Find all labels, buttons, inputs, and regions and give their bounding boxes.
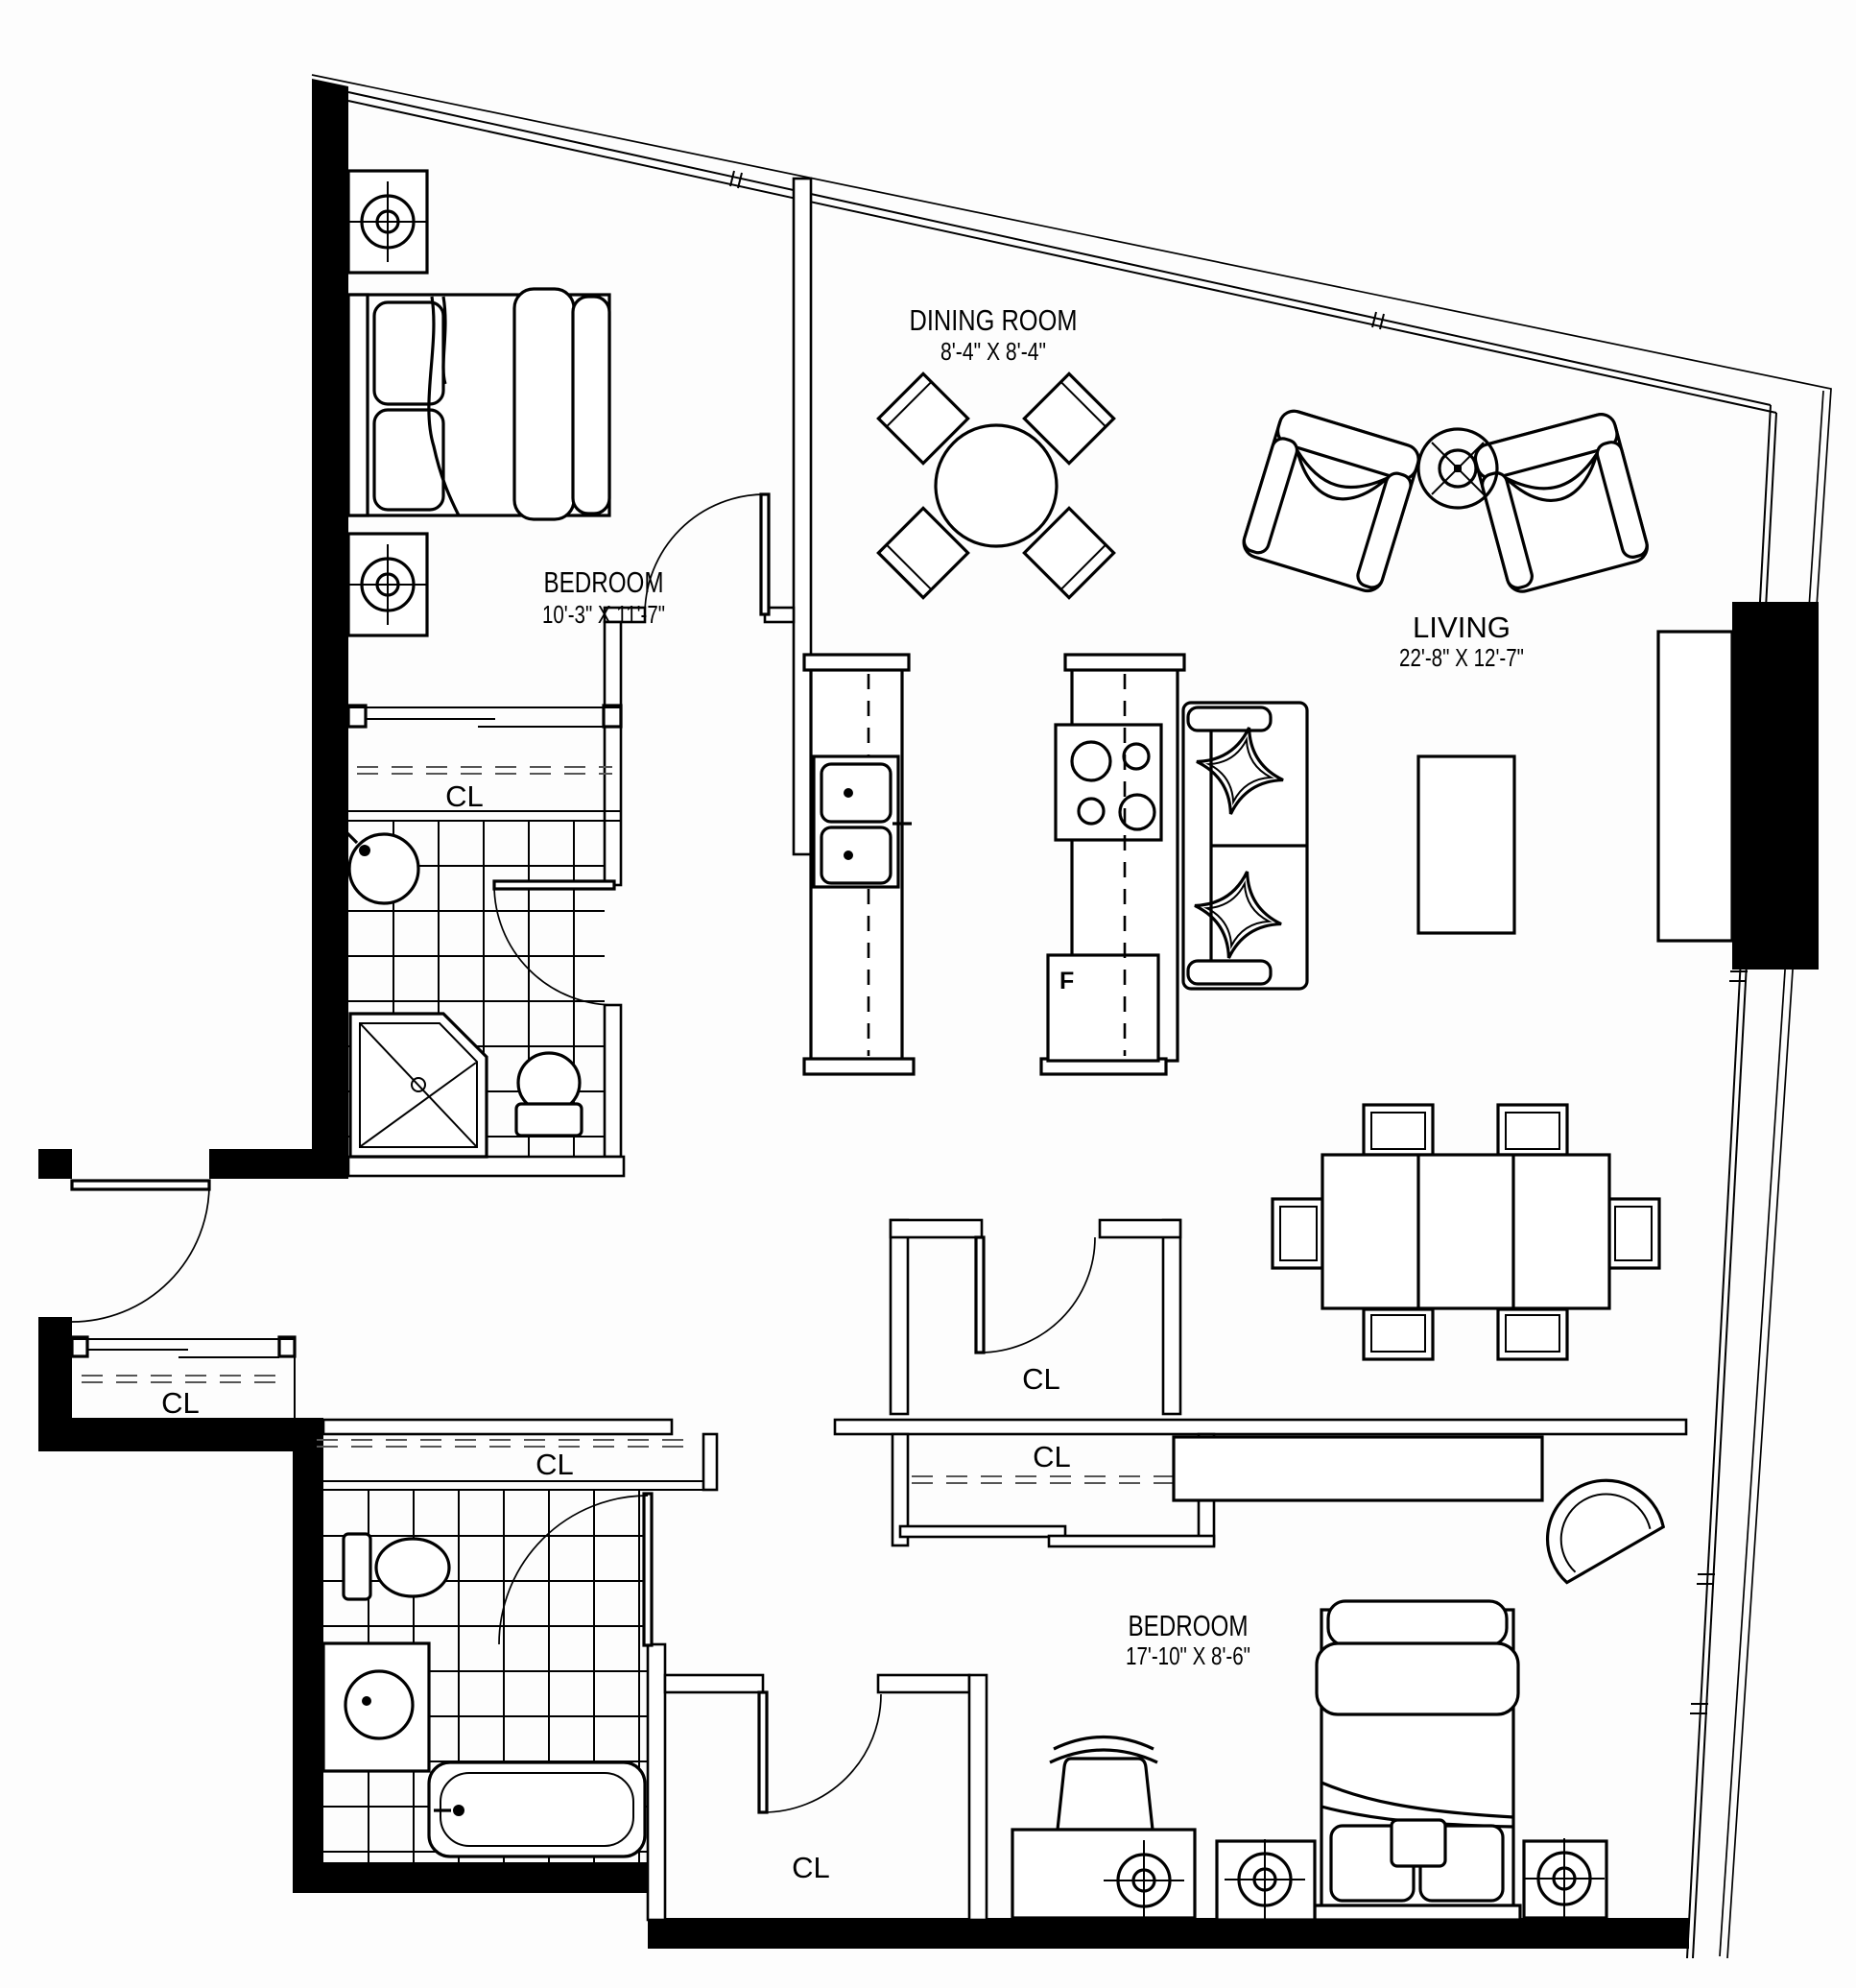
walkin-wall-left [891,1220,908,1414]
closet-bottom-wall-left [665,1675,763,1692]
dining-chair [1498,1105,1567,1155]
closet-bottom-wall-right [878,1675,969,1692]
walkin-wall-right [1163,1220,1180,1414]
entry-door [72,1181,209,1322]
closet-label: CL [792,1851,830,1884]
bed-double [1315,1601,1520,1920]
armchair [1240,408,1422,595]
wall-entry-top-left [38,1149,72,1179]
walkin-wall-top-left [891,1220,982,1237]
corner-shower [350,1014,487,1157]
bathtub [429,1762,645,1856]
dining-chair [1364,1105,1433,1155]
wall-bedroom-dining [794,179,811,854]
fridge-label: F [1059,968,1074,994]
living-label: LIVING [1413,611,1511,644]
dining-dims: 8'-4" X 8'-4" [940,337,1046,366]
bedroom-bottom-closet: CL [792,1851,830,1884]
bathroom-bottom [323,1491,648,1862]
wall-hall-west-upper [605,622,621,885]
walkin-closet: CL [1022,1362,1060,1396]
wall-entry-left [38,1317,72,1421]
entry-closet: CL [72,1337,295,1420]
bedroom-top-dims: 10'-3" X 11'-7" [542,600,665,629]
bathroom-bottom-door [499,1494,652,1645]
sofa [1183,703,1307,989]
desk-and-chair [1012,1737,1195,1922]
kitchen: F [804,655,1184,1074]
round-dining-table [936,425,1057,546]
wall-long-right [835,1420,1686,1434]
tv-console [1658,632,1732,941]
coffee-table [1418,756,1514,933]
wall-bath2-east [648,1644,665,1920]
living-room [1183,408,1819,989]
living-dims: 22'-8" X 12'-7" [1399,643,1524,672]
closet-label: CL [1033,1440,1071,1473]
middle-closet: CL [900,1440,1214,1546]
slider-cap [348,706,366,727]
kitchen-island [804,655,914,1074]
wall-entry-closet-bottom [38,1418,307,1451]
closet-label: CL [445,779,484,813]
dining-table [1322,1155,1609,1308]
bedroom-bottom-closet-door [759,1692,881,1812]
stove [1056,725,1161,840]
media-wall-unit [1732,602,1819,970]
walkin-closet-door [976,1237,1095,1353]
closet-bottom-wall-east [969,1675,987,1920]
wall-bottom-right [648,1918,1689,1949]
wall-hall-west-lower [605,1005,621,1157]
closet-label: CL [161,1386,200,1420]
bypass-door [1049,1536,1214,1546]
kitchen-counter-right: F [1041,655,1184,1074]
sink [323,1643,429,1771]
closet-label: CL [535,1448,574,1481]
slider-cap [604,706,621,727]
lounge-chair [1526,1459,1666,1584]
bathroom-top [336,821,605,1157]
closet-bedroom-top: CL [348,706,621,821]
fridge: F [1048,955,1158,1061]
floor-plan: CL [0,0,1856,1988]
wall-left [312,79,348,1149]
walkin-wall-top-right [1100,1220,1180,1237]
bath-bottom-closet: CL [307,1440,703,1490]
dining-chair [1364,1309,1433,1359]
kitchen-sink [814,756,912,887]
toilet [516,1053,582,1136]
wall-entry-top-right [209,1149,348,1179]
armchair [1472,411,1651,594]
closet-label: CL [1022,1362,1060,1396]
bed-double [348,289,609,519]
dining-chair [1498,1309,1567,1359]
dining-chair [1609,1199,1659,1268]
bathroom-top-door [494,881,614,1005]
bedroom-bottom-dims: 17'-10" X 8'-6" [1126,1641,1250,1670]
bedroom-top-label: BEDROOM [544,565,664,599]
toilet [344,1534,449,1599]
bedroom-bottom-furniture [1012,1437,1666,1921]
wall-left-lower [293,1418,323,1866]
bypass-door [900,1526,1065,1537]
wall-long-left [323,1420,672,1434]
wall-bath2-closet-end [703,1434,717,1490]
dining-main [1273,1105,1659,1359]
dining-chair [1273,1199,1322,1268]
dining-label: DINING ROOM [910,303,1078,337]
wall-bottom-left [293,1862,665,1893]
dresser [1174,1437,1542,1500]
bedroom-bottom-label: BEDROOM [1129,1609,1249,1642]
dining-nook [878,373,1113,597]
wall-bath1-south [348,1157,624,1176]
